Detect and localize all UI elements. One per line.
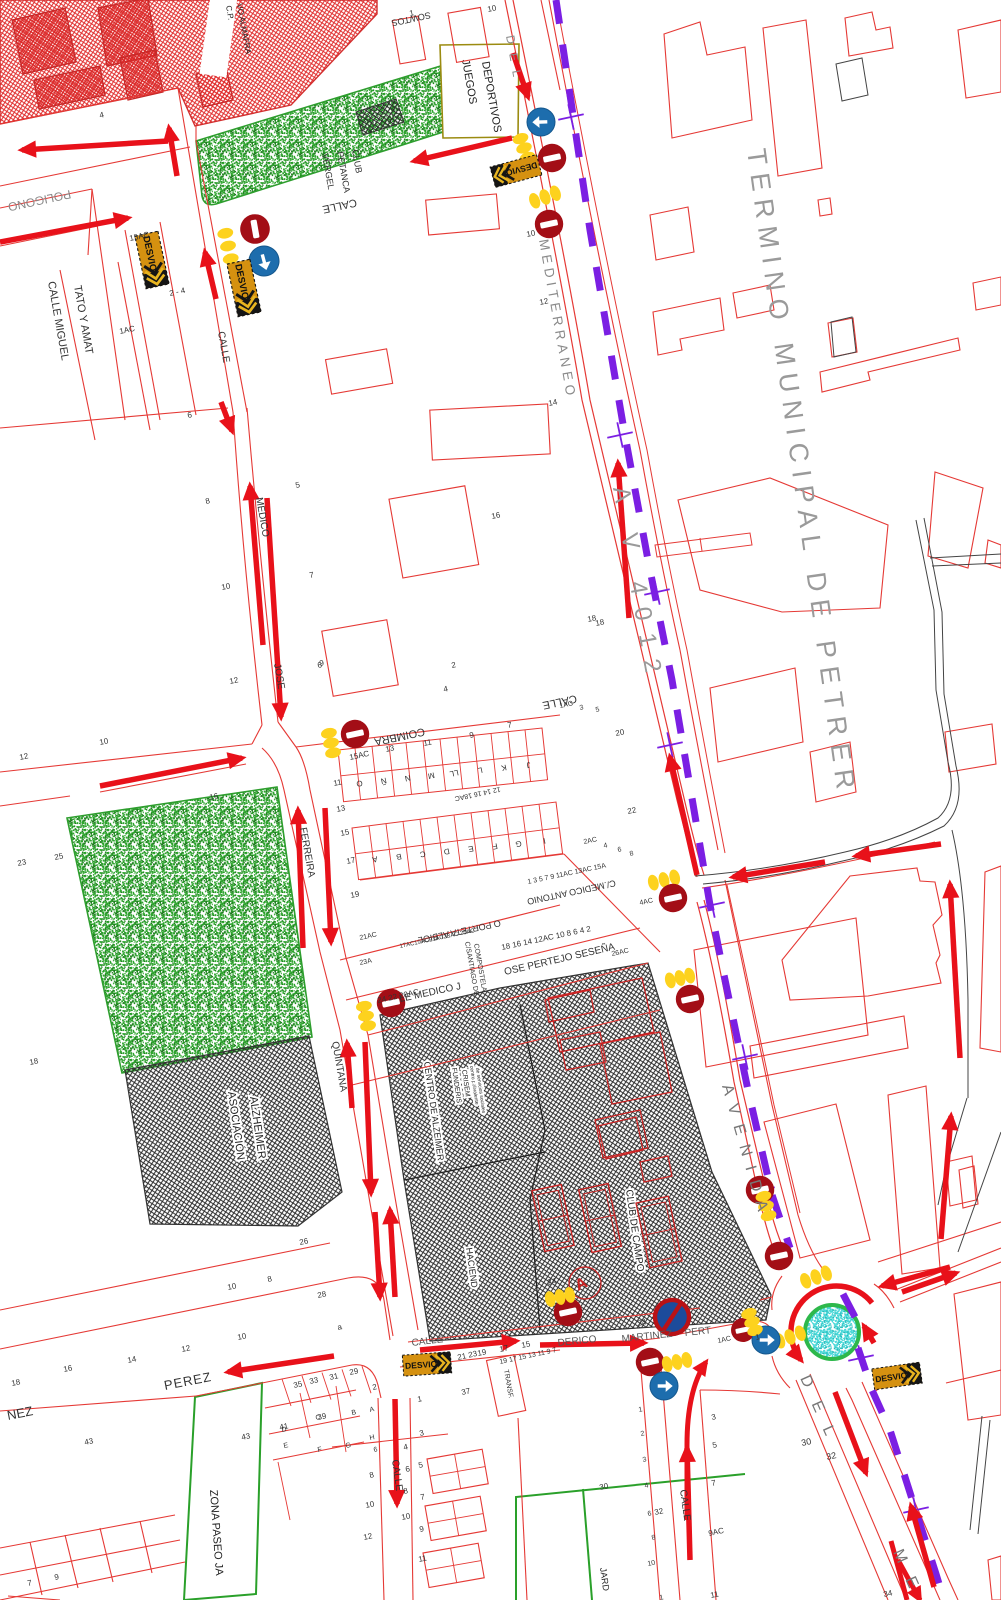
svg-text:32: 32 bbox=[825, 1450, 837, 1462]
svg-text:30: 30 bbox=[800, 1436, 812, 1448]
